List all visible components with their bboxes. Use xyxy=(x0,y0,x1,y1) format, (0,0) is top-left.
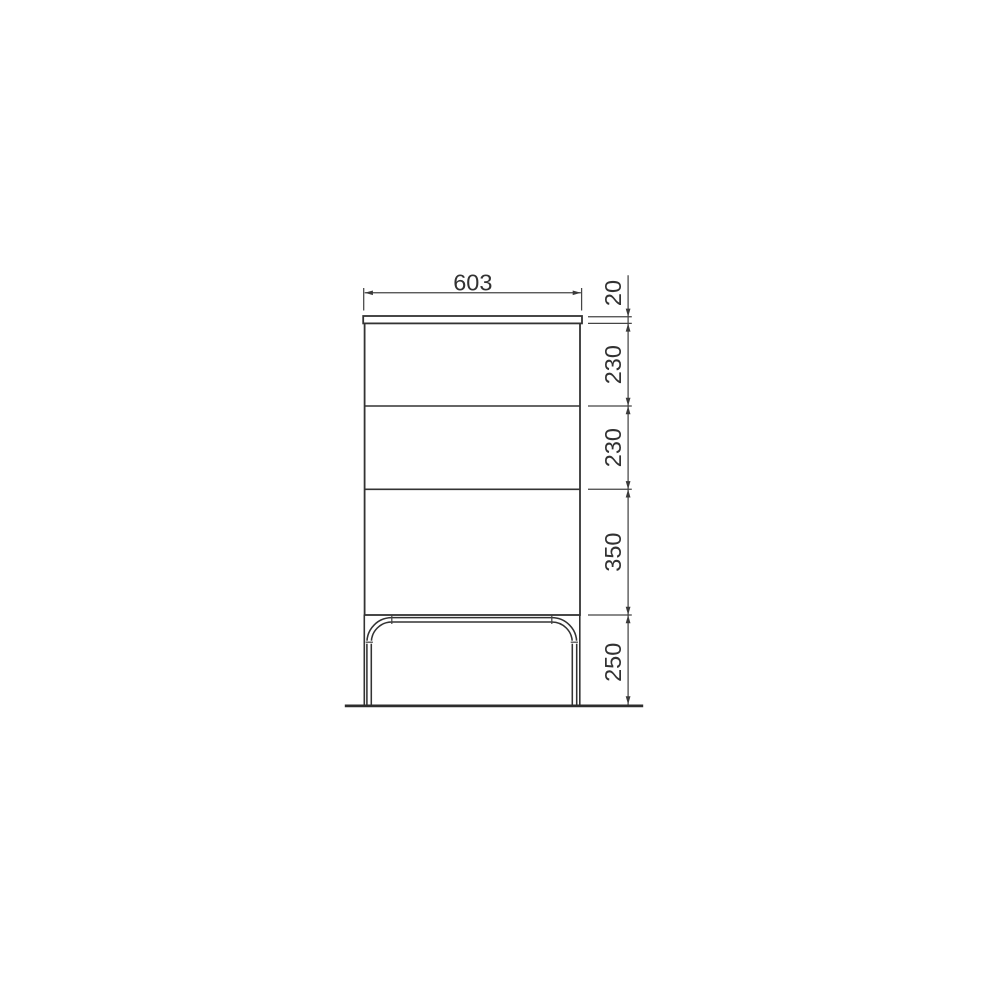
svg-text:250: 250 xyxy=(600,643,626,682)
svg-text:350: 350 xyxy=(600,532,626,571)
svg-text:603: 603 xyxy=(453,270,492,296)
svg-text:230: 230 xyxy=(600,345,626,384)
svg-text:20: 20 xyxy=(600,280,626,306)
svg-text:230: 230 xyxy=(600,428,626,467)
